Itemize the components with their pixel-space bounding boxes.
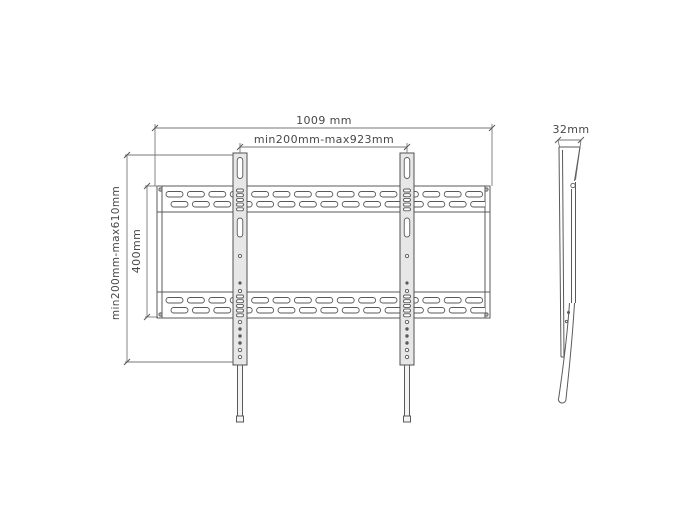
front-view xyxy=(157,153,490,422)
dim-vesa-height: 400mm xyxy=(130,183,158,320)
dim-vesa-width-label: min200mm-max923mm xyxy=(254,133,394,146)
side-hole xyxy=(565,320,567,322)
dim-vesa-height-label: 400mm xyxy=(130,229,143,273)
hook-rod xyxy=(405,365,410,416)
drawing-svg: 1009 mm min200mm-max923mm min200mm-max61… xyxy=(0,0,700,525)
side-arm-profile xyxy=(565,182,575,323)
dim-total-width: 1009 mm xyxy=(152,114,495,186)
dim-depth-label: 32mm xyxy=(552,123,589,136)
dim-depth: 32mm xyxy=(552,123,589,180)
hook-rod-tip xyxy=(237,416,244,422)
side-view xyxy=(558,147,580,403)
dim-vesa-width: min200mm-max923mm xyxy=(237,133,410,153)
vesa-arm xyxy=(400,153,414,422)
hook-rod xyxy=(238,365,243,416)
hook-rod-tip xyxy=(404,416,411,422)
screw-icon xyxy=(159,313,162,316)
screw-icon xyxy=(485,188,488,191)
side-wall-plate xyxy=(559,147,580,357)
hook-pivot xyxy=(571,183,575,187)
wall-plate-frame xyxy=(157,186,490,318)
screw-icon xyxy=(485,313,488,316)
screw-icon xyxy=(159,188,162,191)
dim-total-width-label: 1009 mm xyxy=(296,114,352,127)
technical-drawing-canvas: 1009 mm min200mm-max923mm min200mm-max61… xyxy=(0,0,700,525)
vesa-arm xyxy=(233,153,247,422)
dim-height-range-label: min200mm-max610mm xyxy=(110,186,122,320)
